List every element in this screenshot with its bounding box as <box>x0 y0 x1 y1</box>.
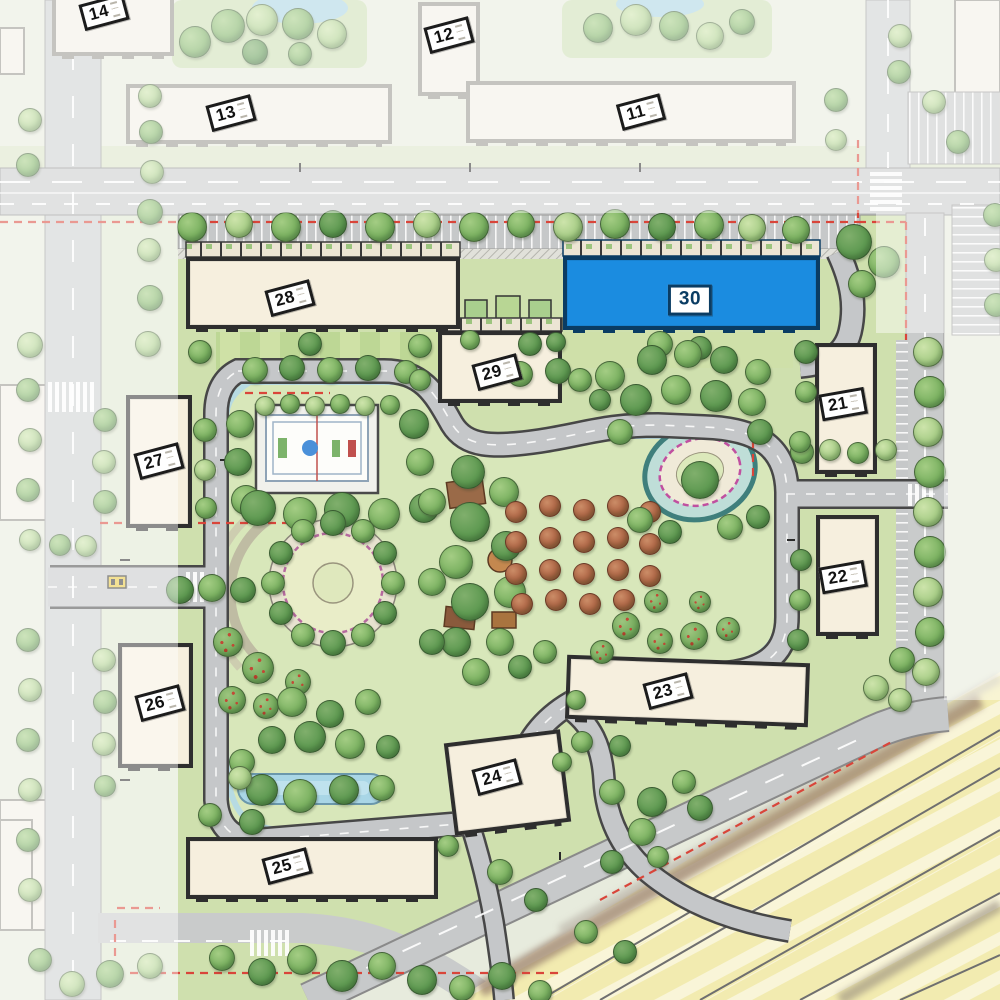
label-detail-lines <box>503 361 514 377</box>
building-number: 26 <box>143 693 167 716</box>
label-detail-lines <box>674 680 685 696</box>
building-number: 27 <box>142 451 166 474</box>
building-number: 28 <box>273 288 297 311</box>
sport-court <box>256 405 378 493</box>
building-13[interactable] <box>126 84 392 144</box>
building-number: 13 <box>214 103 238 126</box>
building-number: 29 <box>480 362 504 385</box>
building-number: 14 <box>87 2 111 25</box>
gate-icon <box>108 576 126 588</box>
label-detail-lines <box>646 101 657 117</box>
label-detail-lines <box>850 567 859 583</box>
building-number: 11 <box>625 102 648 125</box>
site-plan: 1413121128302921272226232425 <box>0 0 1000 1000</box>
label-detail-lines <box>455 24 466 40</box>
building-25[interactable] <box>186 837 438 899</box>
building-number: 30 <box>679 290 701 311</box>
building-number: 22 <box>827 567 850 589</box>
units-strip-30 <box>563 240 820 256</box>
label-detail-lines <box>296 287 307 303</box>
lawn-below-30 <box>563 332 793 368</box>
building-number: 24 <box>480 767 504 790</box>
building-number: 21 <box>827 394 850 416</box>
label-detail-lines <box>293 855 304 871</box>
pond <box>238 774 386 804</box>
units-strip-28 <box>186 242 460 257</box>
label-detail-lines <box>165 450 176 466</box>
label-detail-lines <box>850 394 859 410</box>
building-label-30[interactable]: 30 <box>668 285 712 316</box>
building-number: 12 <box>432 25 456 48</box>
building-28[interactable] <box>186 257 460 329</box>
building-number: 25 <box>270 856 294 879</box>
label-detail-lines <box>166 692 177 708</box>
building-number: 23 <box>651 681 675 704</box>
label-detail-lines <box>110 1 121 17</box>
label-detail-lines <box>503 766 514 782</box>
label-detail-lines <box>237 102 248 118</box>
